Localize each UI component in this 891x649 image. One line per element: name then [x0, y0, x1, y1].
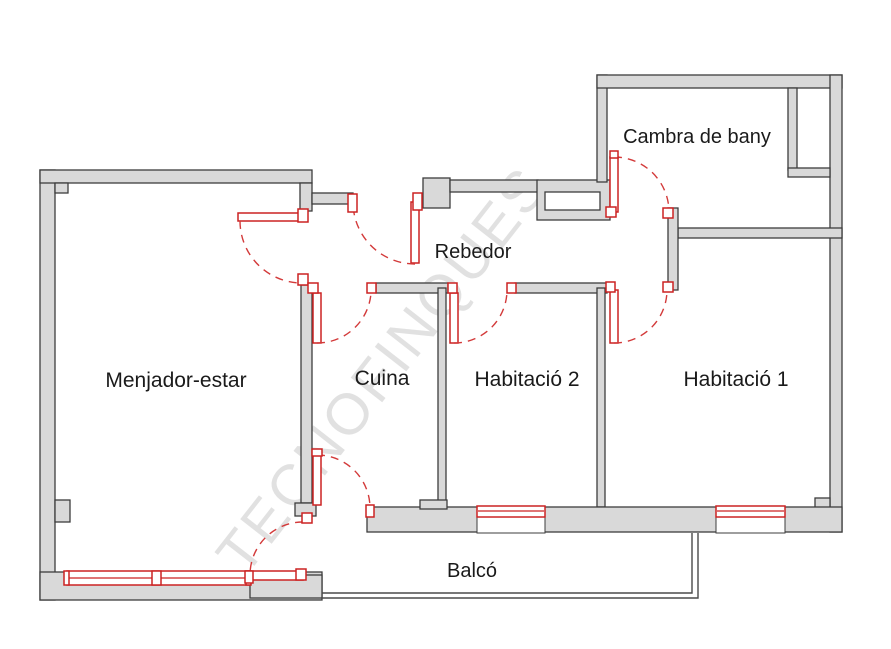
- jamb-habitacio1-left: [606, 282, 615, 292]
- floor-plan-svg: TECNOFINQUES: [0, 0, 891, 649]
- label-balco: Balcó: [447, 560, 497, 582]
- jamb-habitacio1-right: [663, 282, 673, 292]
- jamb-bathroom-left: [606, 207, 616, 217]
- door-leaf-habitacio1: [610, 290, 618, 343]
- wall-bath-closet-vertical: [788, 88, 797, 170]
- balcony-outline: [322, 533, 698, 598]
- wall-corridor-right-pier: [668, 208, 678, 290]
- door-arc-menjador: [240, 221, 302, 283]
- jamb-menjador-balcony-left: [245, 571, 253, 583]
- label-rebedor: Rebedor: [435, 241, 512, 263]
- jamb-habitacio2-right: [507, 283, 516, 293]
- label-cambra-de-bany: Cambra de bany: [623, 126, 771, 148]
- label-menjador-estar: Menjador-estar: [105, 369, 246, 392]
- jamb-cuina-balcony-right: [366, 505, 374, 517]
- jamb-menjador-bottom: [298, 274, 308, 285]
- wall-bathroom-bottom: [678, 228, 842, 238]
- walls: [40, 75, 842, 600]
- door-arc-habitacio1: [614, 290, 667, 343]
- wall-corner-step-topleft: [55, 183, 68, 193]
- window-bay-habitacio2: [477, 517, 545, 533]
- jamb-cuina-right: [367, 283, 376, 293]
- jamb-cuina-balcony-bottom: [302, 513, 312, 523]
- jamb-menjador-balcony-right: [296, 569, 306, 580]
- wall-pillar-left: [55, 500, 70, 522]
- door-arc-entry: [353, 202, 415, 264]
- wall-menjador-right-upper: [300, 183, 312, 211]
- door-leaf-cuina: [313, 293, 321, 343]
- wall-corridor-south-1: [376, 283, 448, 293]
- jamb-entry-right: [413, 193, 422, 210]
- door-leaf-menjador-balcony: [250, 571, 303, 580]
- wall-menjador-cuina: [301, 285, 312, 503]
- jamb-menjador-top: [298, 209, 308, 222]
- wall-top-thin-2: [450, 180, 538, 192]
- door-leaf-cuina-balcony: [313, 455, 321, 505]
- jamb-cuina-balcony-top: [312, 449, 322, 456]
- door-leaf-bathroom: [610, 157, 618, 212]
- wall-exterior-left: [40, 170, 55, 600]
- window-menjador-mullion: [152, 571, 161, 585]
- wall-top-thin-1: [312, 193, 353, 204]
- jamb-entry-left: [348, 194, 357, 212]
- wall-corridor-south-2: [515, 283, 607, 293]
- door-leaf-entry: [411, 202, 419, 263]
- wall-bathroom-left: [597, 75, 607, 182]
- wall-cuina-habitacio2: [438, 288, 446, 504]
- door-arc-bathroom: [614, 157, 669, 212]
- wall-footing-cuina: [420, 500, 447, 509]
- jamb-bathroom-right: [663, 208, 673, 218]
- balcony-railing-outer: [322, 533, 698, 598]
- wall-bath-closet-horizontal: [788, 168, 830, 177]
- label-habitacio-2: Habitació 2: [474, 368, 579, 391]
- wall-habitacio2-habitacio1: [597, 288, 605, 507]
- door-arc-cuina: [317, 293, 371, 343]
- window-bay-habitacio1: [716, 517, 785, 533]
- window-menjador-cap-left: [64, 571, 69, 585]
- jamb-cuina-left: [308, 283, 318, 293]
- shaft-inner-void: [545, 192, 600, 210]
- wall-entry-block: [423, 178, 450, 208]
- jamb-habitacio2-left: [448, 283, 457, 293]
- wall-exterior-top-menjador: [40, 170, 312, 183]
- wall-exterior-right: [830, 75, 842, 532]
- floor-plan: TECNOFINQUES: [0, 0, 891, 649]
- door-leaf-habitacio2: [450, 293, 458, 343]
- door-leaf-menjador: [238, 213, 304, 221]
- balcony-railing-inner: [322, 533, 692, 593]
- label-habitacio-1: Habitació 1: [683, 368, 788, 391]
- wall-exterior-top-bathroom: [597, 75, 842, 88]
- label-cuina: Cuina: [355, 367, 410, 390]
- jamb-bathroom-hinge-cap: [610, 151, 618, 158]
